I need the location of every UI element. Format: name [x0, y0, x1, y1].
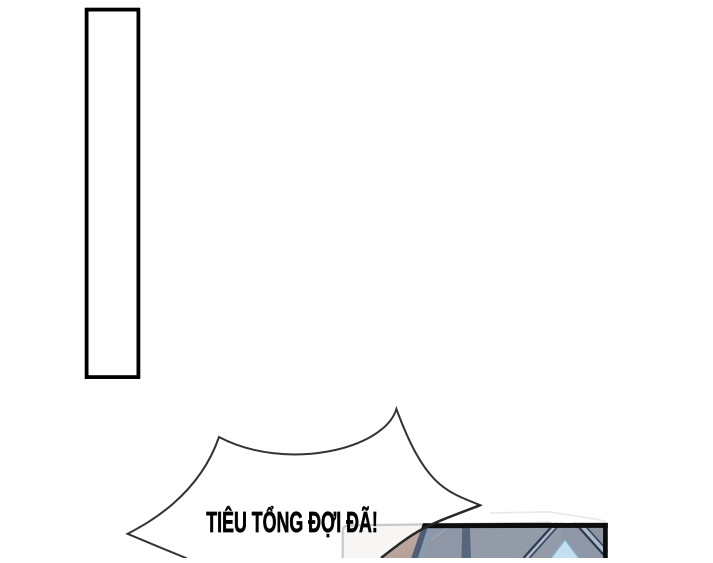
- svg-text:TIÊU TỔNG ĐỢI ĐÃ!: TIÊU TỔNG ĐỢI ĐÃ!: [206, 505, 378, 539]
